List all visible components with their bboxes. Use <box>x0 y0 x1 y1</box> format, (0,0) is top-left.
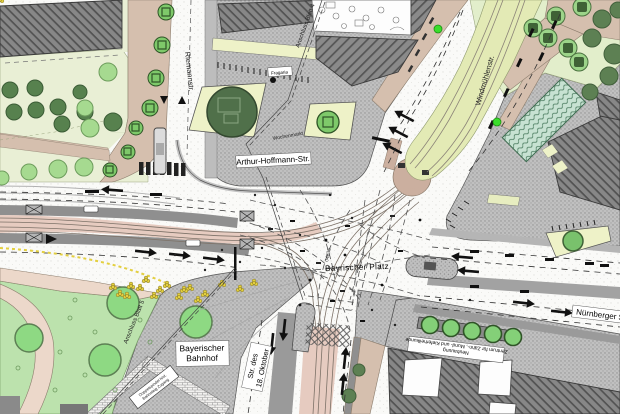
svg-text:Bahnhof: Bahnhof <box>186 353 218 364</box>
